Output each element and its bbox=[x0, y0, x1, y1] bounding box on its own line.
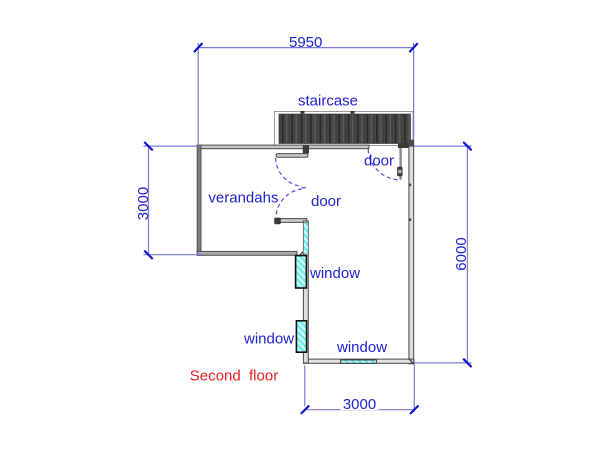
svg-text:6000: 6000 bbox=[453, 237, 470, 270]
svg-text:window: window bbox=[336, 339, 387, 356]
svg-text:3000: 3000 bbox=[343, 396, 376, 413]
svg-text:Second floor: Second floor bbox=[190, 367, 278, 384]
svg-text:window: window bbox=[243, 330, 294, 347]
svg-text:verandahs: verandahs bbox=[208, 189, 278, 206]
svg-text:door: door bbox=[364, 153, 394, 170]
svg-text:staircase: staircase bbox=[298, 93, 358, 110]
svg-text:3000: 3000 bbox=[135, 187, 152, 220]
svg-text:window: window bbox=[309, 265, 360, 282]
svg-text:door: door bbox=[311, 193, 341, 210]
svg-text:5950: 5950 bbox=[289, 34, 322, 51]
